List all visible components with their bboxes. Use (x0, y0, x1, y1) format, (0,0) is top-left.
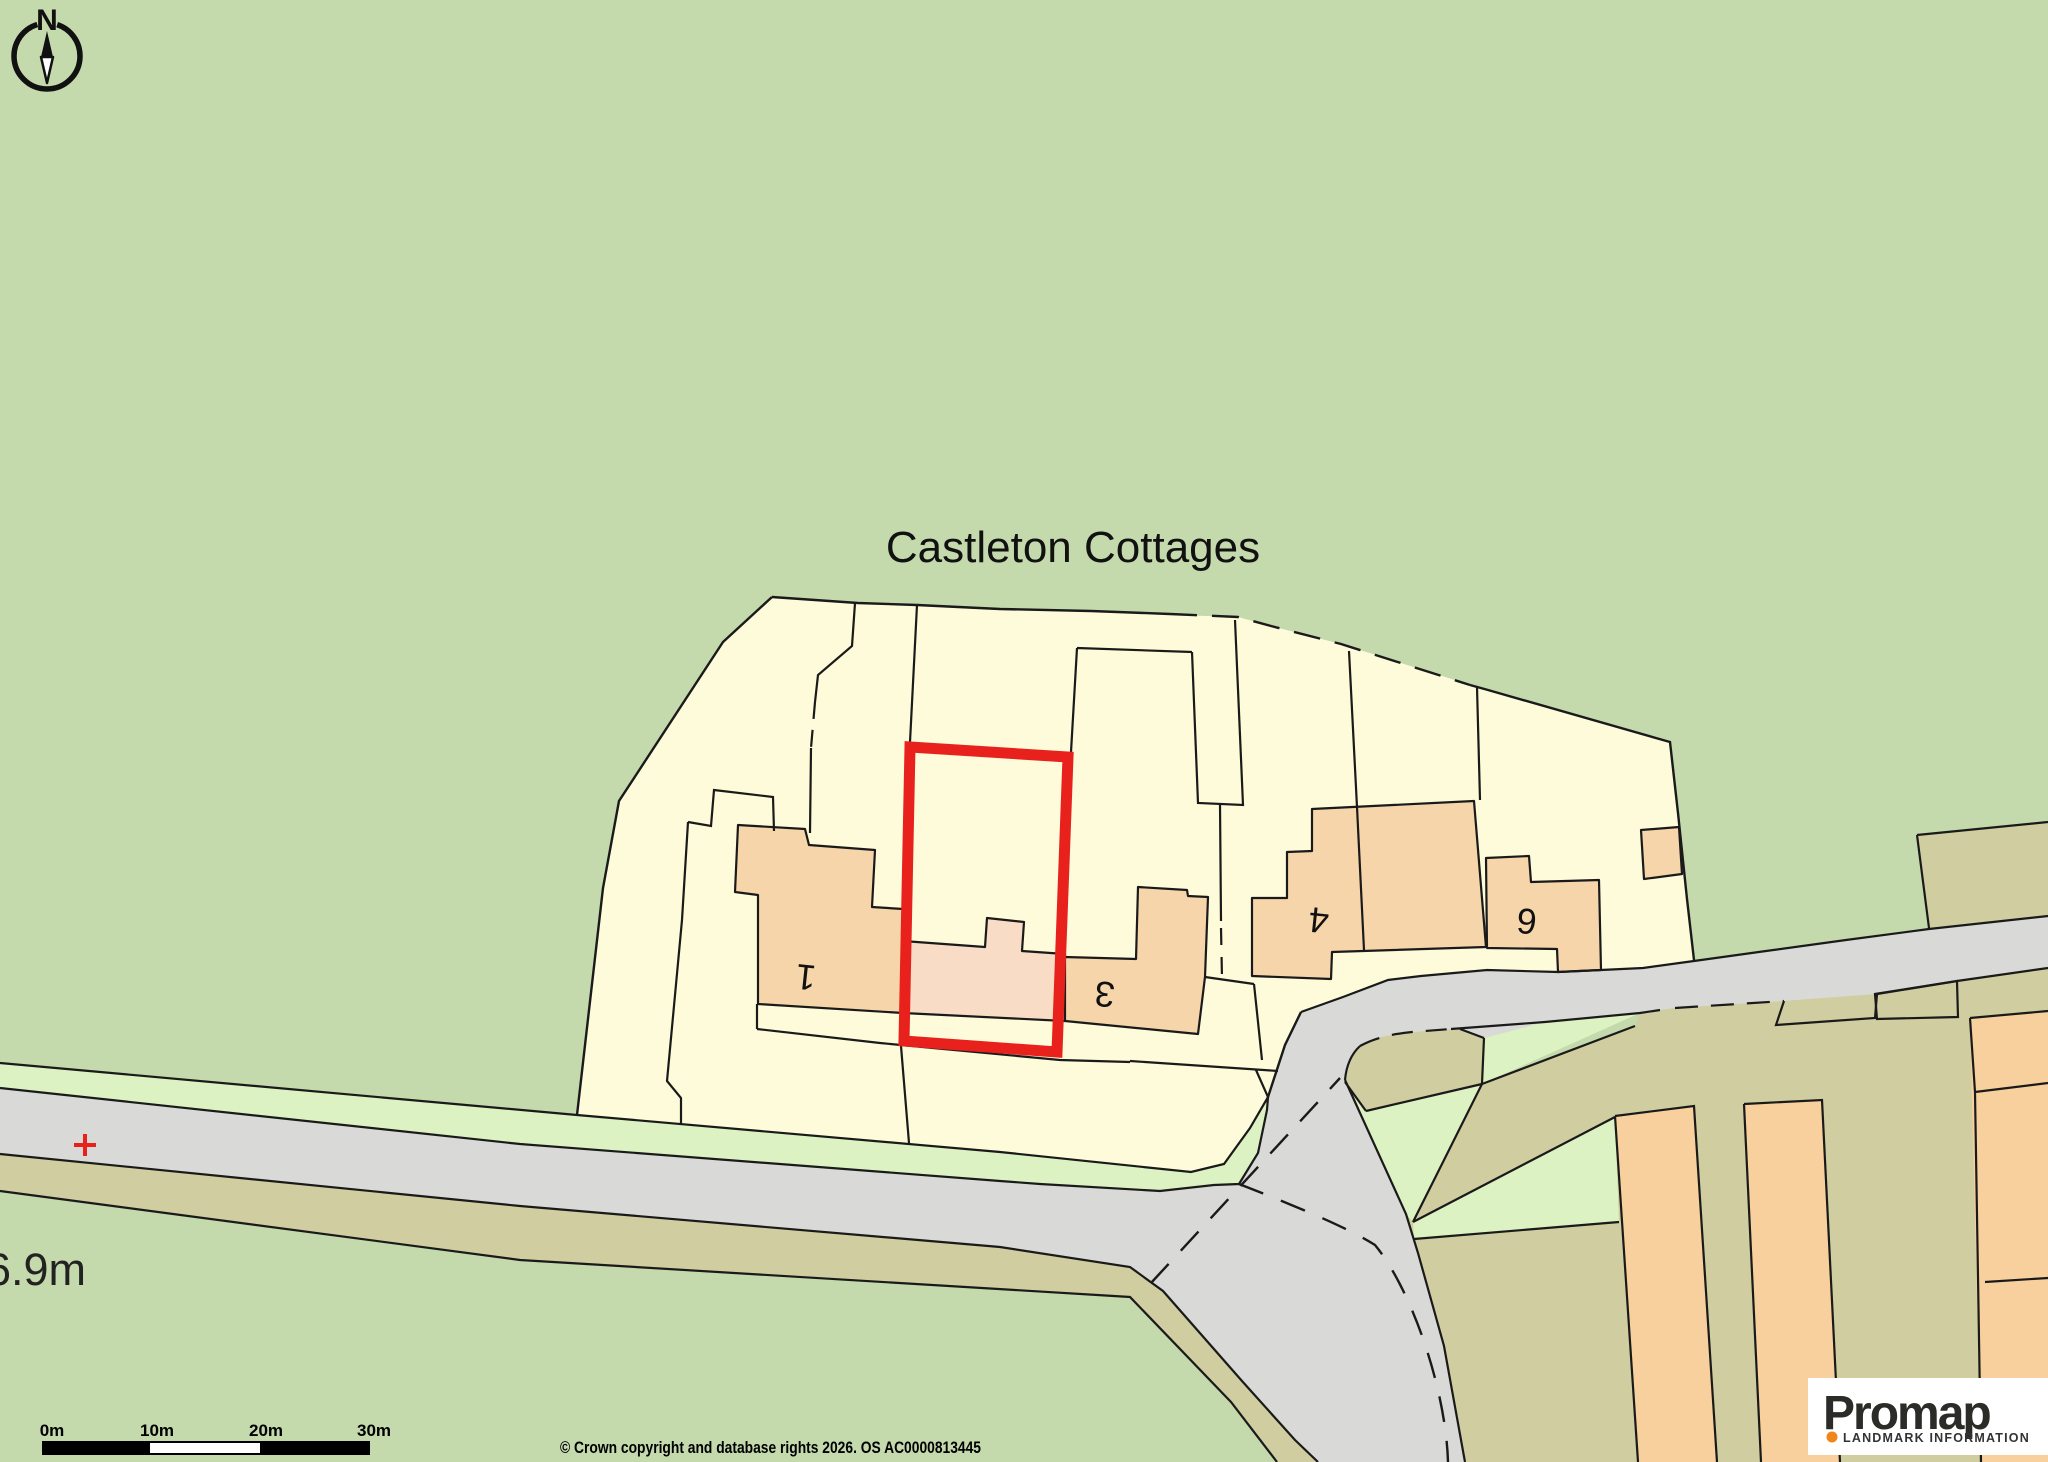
svg-text:30m: 30m (357, 1421, 391, 1440)
svg-text:4: 4 (1307, 899, 1331, 942)
svg-text:Castleton Cottages: Castleton Cottages (886, 523, 1260, 572)
svg-text:6.9m: 6.9m (0, 1244, 86, 1295)
svg-text:© Crown copyright and database: © Crown copyright and database rights 20… (560, 1439, 981, 1457)
svg-text:10m: 10m (140, 1421, 174, 1440)
svg-text:6: 6 (1515, 900, 1539, 943)
svg-text:3: 3 (1093, 973, 1117, 1016)
svg-text:0m: 0m (40, 1421, 65, 1440)
svg-text:20m: 20m (249, 1421, 283, 1440)
svg-text:LANDMARK INFORMATION: LANDMARK INFORMATION (1843, 1431, 2030, 1445)
svg-text:1: 1 (794, 956, 818, 999)
svg-text:N: N (36, 4, 58, 37)
